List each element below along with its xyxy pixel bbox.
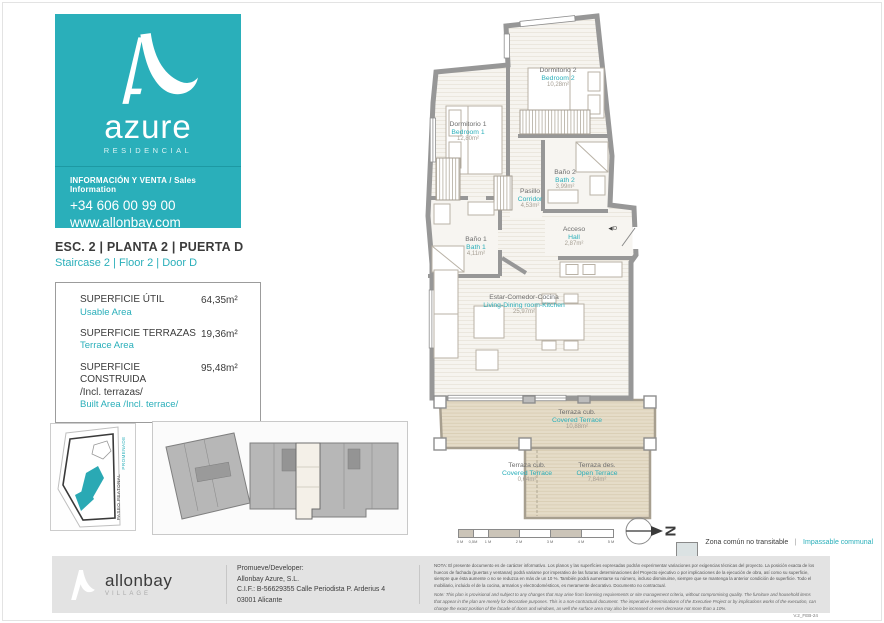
footer-divider-1 bbox=[226, 565, 227, 604]
built-area-label-es2: /Incl. terrazas/ bbox=[80, 387, 201, 400]
street-label-en: PROMENADE bbox=[121, 436, 126, 469]
site-location-map: PASEO PEATONAL PROMENADE bbox=[50, 423, 136, 536]
brand-name: azure bbox=[55, 110, 241, 143]
website-link[interactable]: www.allonbay.com bbox=[70, 215, 226, 230]
apartment-floor-plan: Dormitorio 2 Bedroom 2 10,28m² Dormitori… bbox=[420, 8, 665, 528]
north-arrow-icon: N bbox=[620, 510, 682, 557]
scale-tick-3: 3 M bbox=[547, 539, 554, 544]
room-label-bedroom1: Dormitorio 1 Bedroom 1 12,80m² bbox=[449, 121, 486, 143]
room-label-bath2: Baño 2 Bath 2 3,99m² bbox=[554, 169, 576, 191]
terrace-area-value: 19,36m² bbox=[201, 328, 247, 353]
document-version: V.2_FEB-24 bbox=[434, 613, 818, 620]
developer-cif: C.I.F.: B-56629355 Calle Periodista P. A… bbox=[237, 585, 409, 596]
scale-bar: 0 M 0,5M 1 M 2 M 3 M 4 M 5 M bbox=[458, 529, 614, 547]
room-label-hall: Acceso Hall 2,87m² bbox=[563, 226, 585, 248]
covered-terrace-floor bbox=[440, 400, 655, 448]
legend-separator: | bbox=[795, 539, 797, 546]
built-area-label-es: SUPERFICIE CONSTRUIDA bbox=[80, 362, 201, 387]
scale-tick-1: 1 M bbox=[485, 539, 492, 544]
scale-tick-05: 0,5M bbox=[469, 539, 478, 544]
brand-panel: azure RESIDENCIAL INFORMACIÓN Y VENTA / … bbox=[55, 14, 241, 228]
legend-swatch-communal-area bbox=[676, 542, 698, 557]
built-area-value: 95,48m² bbox=[201, 362, 247, 412]
room-label-covered-terrace-small: Terraza cub. Covered Terrace 0,64m² bbox=[502, 462, 552, 484]
built-area-label-en: Built Area /Incl. terrace/ bbox=[80, 399, 201, 411]
street-label-es: PASEO PEATONAL bbox=[116, 474, 121, 520]
areas-table: SUPERFICIE ÚTIL Usable Area 64,35m² SUPE… bbox=[55, 282, 261, 423]
room-label-bedroom2: Dormitorio 2 Bedroom 2 10,28m² bbox=[539, 67, 576, 89]
allonbay-village-label: VILLAGE bbox=[105, 591, 172, 597]
room-label-covered-terrace: Terraza cub. Covered Terrace 10,88m² bbox=[552, 409, 602, 431]
room-label-corridor: Pasillo Corridor 4,53m² bbox=[518, 188, 543, 210]
area-row-usable: SUPERFICIE ÚTIL Usable Area 64,35m² bbox=[80, 294, 247, 319]
unit-subtitle: Staircase 2 | Floor 2 | Door D bbox=[55, 257, 197, 269]
allonbay-logo: allonbay VILLAGE bbox=[52, 556, 216, 613]
footer-divider-2 bbox=[419, 565, 420, 604]
area-row-built: SUPERFICIE CONSTRUIDA /Incl. terrazas/ B… bbox=[80, 362, 247, 412]
developer-name: Allonbay Azure, S.L. bbox=[237, 575, 409, 586]
room-label-living: Estar-Comedor-Cocina Living-Dining room-… bbox=[483, 294, 565, 316]
developer-city: 03001 Alicante bbox=[237, 596, 409, 607]
brand-tagline: RESIDENCIAL bbox=[55, 146, 241, 155]
developer-label: Promueve/Developer: bbox=[237, 564, 409, 575]
room-label-open-terrace: Terraza des. Open Terrace 7,84m² bbox=[576, 462, 617, 484]
door-d-marker: ◀D bbox=[608, 226, 617, 232]
legend-label-es: Zona común no transitable bbox=[705, 539, 788, 546]
developer-info: Promueve/Developer: Allonbay Azure, S.L.… bbox=[237, 556, 409, 613]
overview-highlighted-unit bbox=[296, 443, 320, 519]
terrace-area-label-es: SUPERFICIE TERRAZAS bbox=[80, 328, 201, 341]
unit-title: ESC. 2 | PLANTA 2 | PUERTA D bbox=[55, 240, 243, 254]
sales-info-label: INFORMACIÓN Y VENTA / Sales Information bbox=[70, 176, 226, 194]
allonbay-wordmark: allonbay bbox=[105, 572, 172, 589]
scale-tick-4: 4 M bbox=[578, 539, 585, 544]
usable-area-label-es: SUPERFICIE ÚTIL bbox=[80, 294, 201, 307]
scale-tick-5: 5 M bbox=[608, 539, 615, 544]
usable-area-value: 64,35m² bbox=[201, 294, 247, 319]
scale-tick-2: 2 M bbox=[516, 539, 523, 544]
allonbay-a-icon bbox=[68, 565, 98, 605]
brochure-page: azure RESIDENCIAL INFORMACIÓN Y VENTA / … bbox=[0, 0, 884, 623]
azure-logo-icon bbox=[96, 24, 200, 120]
usable-area-label-en: Usable Area bbox=[80, 307, 201, 319]
overview-main-block bbox=[250, 443, 398, 517]
terrace-area-label-en: Terrace Area bbox=[80, 340, 201, 352]
footer-bar: allonbay VILLAGE Promueve/Developer: All… bbox=[52, 556, 830, 613]
legal-note-en: Note: This plan is provisional and subje… bbox=[434, 592, 818, 612]
scale-tick-0: 0 M bbox=[457, 539, 464, 544]
legal-note-es: NOTA: El presente documento es de caráct… bbox=[434, 563, 818, 589]
area-row-terrace: SUPERFICIE TERRAZAS Terrace Area 19,36m² bbox=[80, 328, 247, 353]
phone-number[interactable]: +34 606 00 99 00 bbox=[70, 198, 226, 213]
floor-overview-plan bbox=[152, 421, 408, 540]
legal-notes: NOTA: El presente documento es de caráct… bbox=[430, 556, 830, 613]
room-label-bath1: Baño 1 Bath 1 4,11m² bbox=[465, 236, 487, 258]
